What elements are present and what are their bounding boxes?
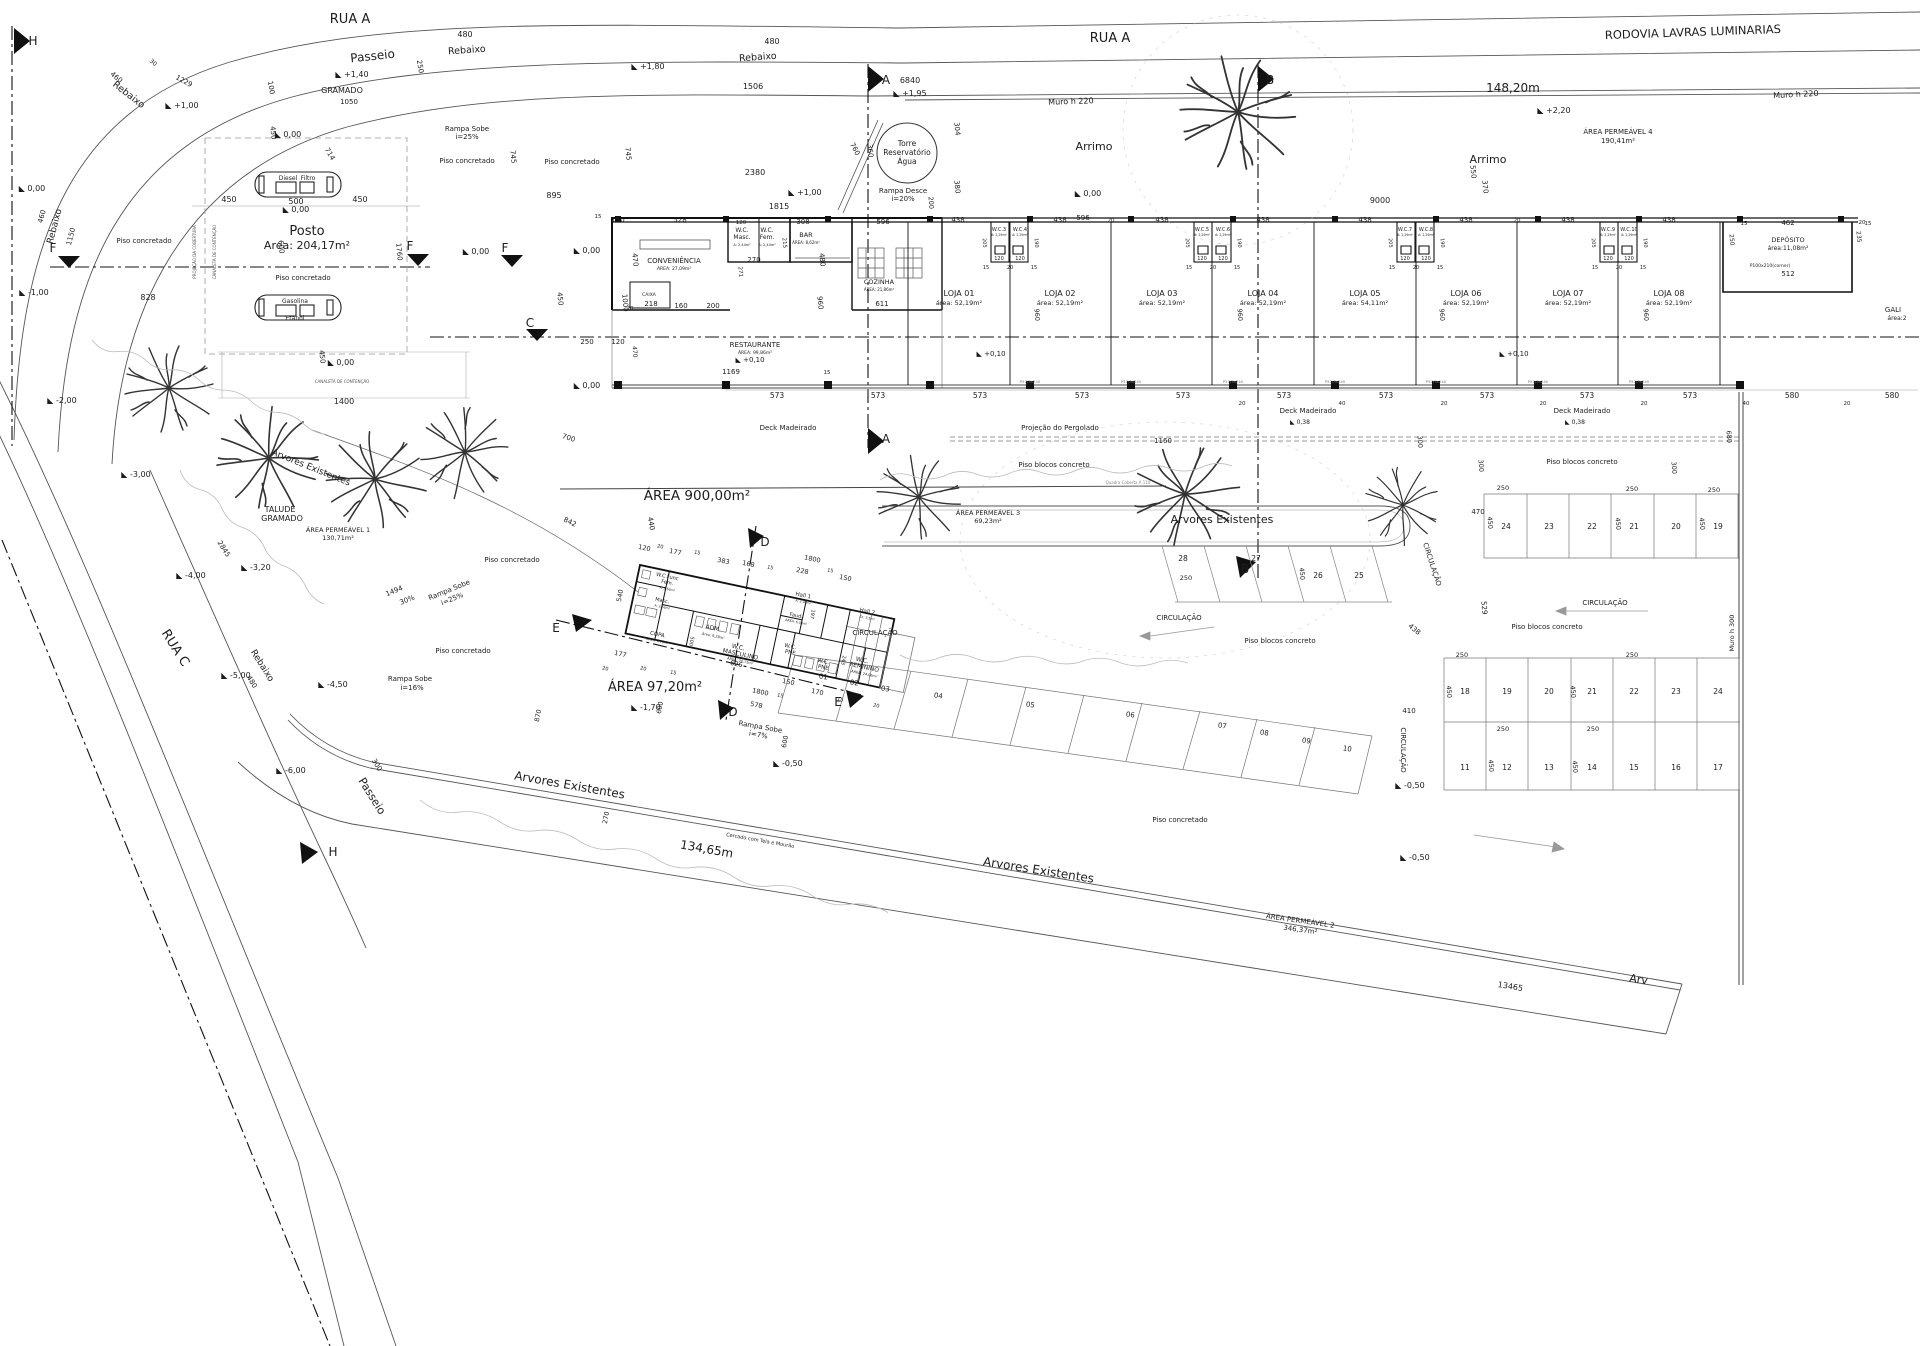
plan-label: CAIXA xyxy=(642,292,657,298)
plan-label: área: 52,19m² xyxy=(1646,299,1693,307)
plan-label: ◣ 0,00 xyxy=(19,184,46,193)
tree-band xyxy=(882,506,1410,602)
plan-label: 20 xyxy=(627,306,634,312)
plan-label: 20 xyxy=(1616,265,1622,271)
plan-label: 1506 xyxy=(743,82,763,91)
circulation-arrows xyxy=(1140,607,1648,852)
plan-label: ◣ 0,00 xyxy=(574,246,601,255)
plan-label: 450 xyxy=(1568,685,1577,698)
plan-label: 6840 xyxy=(900,76,920,85)
plan-label: ÁREA: 8,62m² xyxy=(792,240,820,245)
plan-label: 26 xyxy=(1313,571,1323,580)
plan-label: Rebaixo xyxy=(46,207,65,245)
plan-label: 218 xyxy=(644,300,657,308)
plan-label: CANALETA DE CONTENÇÃO xyxy=(212,225,217,280)
plan-label: 02 xyxy=(849,678,859,687)
plan-label: 40 xyxy=(1743,401,1750,407)
plan-label: 20 xyxy=(1671,522,1681,531)
plan-label: TALUDE xyxy=(264,505,296,514)
plan-label: 15 xyxy=(1186,265,1192,271)
plan-label: 09 xyxy=(1301,736,1311,745)
plan-label: ◣ 0,00 xyxy=(1075,189,1102,198)
tree xyxy=(868,448,970,549)
plan-label: 200 xyxy=(926,196,935,209)
plan-label: 573 xyxy=(1379,391,1394,400)
section-marker-triangle xyxy=(572,614,592,632)
plan-label: ◣ -0,50 xyxy=(1395,781,1424,790)
plan-label: 596 xyxy=(1076,214,1090,222)
plan-label: 130,71m² xyxy=(322,534,354,542)
plan-label: ◣ 0,00 xyxy=(283,205,310,214)
plan-label: ◣ +0,10 xyxy=(1499,350,1528,358)
plan-label: área: 52,19m² xyxy=(1037,299,1084,307)
plan-label: 100 xyxy=(266,80,276,95)
plan-label: 2380 xyxy=(745,168,765,177)
plan-label: 17 xyxy=(1713,763,1723,772)
plan-label: Arvores Existentes xyxy=(513,768,626,801)
plan-label: 120 xyxy=(638,543,652,553)
plan-label: CIRCULAÇÃO xyxy=(1582,598,1628,607)
plan-label: 20 xyxy=(1544,687,1554,696)
plan-label: 462 xyxy=(1781,219,1794,227)
plan-label: P100x210(corner) xyxy=(1750,263,1791,269)
site-plan-drawing: RUA ARUA ARODOVIA LAVRAS LUMINARIASPasse… xyxy=(0,0,1920,1346)
plan-label: 250 xyxy=(1180,574,1192,582)
plan-label: 15 xyxy=(669,669,676,676)
plan-label: 20 xyxy=(1540,401,1547,407)
plan-label: 20 xyxy=(1514,218,1521,224)
plan-label: Quadra Coberta A 110 xyxy=(1106,480,1151,485)
plan-label: ÁREA PERMEÁVEL 1 xyxy=(306,525,370,534)
plan-label: 270 xyxy=(601,811,611,825)
plan-label: Passeio xyxy=(350,47,396,66)
plan-label: Piso concretado xyxy=(544,158,599,166)
plan-label: 1050 xyxy=(340,98,358,106)
plan-label: Diesel xyxy=(279,175,298,182)
plan-label: Reservatório xyxy=(883,148,931,157)
plan-label: Piso blocos concreto xyxy=(1511,623,1582,631)
plan-label: 15 xyxy=(1741,221,1748,227)
plan-label: 11 xyxy=(1460,763,1470,772)
plan-label: CIRCULAÇÃO xyxy=(1156,613,1202,622)
plan-label: 596 xyxy=(876,218,890,226)
plan-label: 450 xyxy=(352,195,367,204)
plan-label: ÁREA 97,20m² xyxy=(608,679,702,695)
plan-label: 960 xyxy=(1032,308,1041,321)
plan-label: 573 xyxy=(770,391,785,400)
plan-label: ◣ +2,20 xyxy=(1537,106,1570,115)
plan-label: Piso concretado xyxy=(439,157,494,165)
plan-label: H xyxy=(28,34,37,48)
kitchen-tables xyxy=(795,248,922,278)
plan-label: Projeção do Pergolado xyxy=(1021,424,1099,432)
plan-label: ÁREA PERMEÁVEL 4 xyxy=(1583,127,1653,136)
plan-label: A xyxy=(882,432,891,446)
plan-label: 21 xyxy=(1587,687,1597,696)
plan-label: 15 xyxy=(766,564,773,571)
plan-label: 20 xyxy=(639,665,646,672)
plan-label: F xyxy=(50,241,57,255)
plan-label: Torre xyxy=(897,139,917,148)
plan-label: ◣ -1,00 xyxy=(19,288,48,297)
plan-label: 21 xyxy=(1629,522,1639,531)
plan-label: 600 xyxy=(780,735,790,749)
plan-label: ◣ -4,00 xyxy=(176,571,205,580)
plan-label: 197 xyxy=(808,609,816,619)
plan-label: ◣ -6,00 xyxy=(276,766,305,775)
plan-label: ◣ 0,38 xyxy=(1565,419,1585,426)
plan-label: Etanol xyxy=(286,315,305,322)
plan-label: 10 xyxy=(1342,744,1352,753)
plan-label: 895 xyxy=(546,191,561,200)
plan-label: 760 xyxy=(848,141,861,157)
plan-label: LOJA 04 xyxy=(1248,289,1279,298)
plan-label: 16 xyxy=(1671,763,1681,772)
plan-label: 15 xyxy=(1592,265,1598,271)
plan-label: CIRCULAÇÃO xyxy=(852,628,898,637)
plan-label: 470 xyxy=(1471,508,1484,516)
plan-label: ◣ -0,50 xyxy=(1400,853,1429,862)
plan-label: 1160 xyxy=(1154,437,1172,445)
plan-label: 120 xyxy=(994,256,1004,262)
plan-label: Masc. xyxy=(733,234,750,241)
plan-label: 450 xyxy=(1697,517,1706,530)
plan-label: 205 xyxy=(1387,238,1394,248)
section-marker-triangle xyxy=(846,690,864,708)
plan-label: i=16% xyxy=(400,684,424,692)
section-marker-triangle xyxy=(58,256,80,268)
plan-label: Piso blocos concreto xyxy=(1244,637,1315,645)
plan-label: GALI xyxy=(1885,306,1901,314)
ramp-line xyxy=(838,120,883,213)
plan-label: 120 xyxy=(1624,256,1634,262)
plan-label: 20 xyxy=(1413,265,1419,271)
tree xyxy=(1115,424,1256,565)
plan-label: DEPÓSITO xyxy=(1771,235,1804,244)
plan-label: Piso concretado xyxy=(275,274,330,282)
plan-label: H xyxy=(328,845,337,859)
plan-label: Piso concretado xyxy=(1152,816,1207,824)
plan-label: 512 xyxy=(1781,270,1794,278)
section-markers xyxy=(14,28,1274,864)
plan-label: ÁREA: 27,09m² xyxy=(657,265,691,272)
plan-label: 15 xyxy=(595,214,602,220)
plan-label: 22 xyxy=(1629,687,1639,696)
plan-label: 12 xyxy=(1502,763,1512,772)
plan-label: 120 xyxy=(1603,256,1613,262)
plan-label: 15 xyxy=(1234,265,1240,271)
plan-label: 308 xyxy=(796,218,809,226)
plan-label: 960 xyxy=(1235,308,1244,321)
plan-label: 20 xyxy=(656,543,663,550)
plan-label: 573 xyxy=(1277,391,1292,400)
right-wall xyxy=(1739,392,1743,985)
plan-label: 270 xyxy=(747,256,760,264)
plan-label: Rebaixo xyxy=(448,44,487,58)
plan-label: 15 xyxy=(826,567,833,574)
restaurant-slab xyxy=(612,310,942,388)
plan-label: 438 xyxy=(1407,622,1422,637)
plan-label: ◣ +1,95 xyxy=(893,89,926,98)
plan-label: 168 xyxy=(742,559,756,569)
plan-label: 120 xyxy=(611,338,624,346)
plan-label: 438 xyxy=(1459,216,1472,224)
plan-label: ÁREA: 99,86m² xyxy=(738,349,772,356)
plan-label: Rampa Sobe xyxy=(388,675,432,683)
plan-label: 1400 xyxy=(334,397,354,406)
plan-label: 20 xyxy=(1007,265,1013,271)
plan-label: Arv xyxy=(1628,972,1649,988)
plan-label: 190 xyxy=(1236,238,1243,248)
plan-label: 1800 xyxy=(803,553,821,564)
plan-label: Muro h 220 xyxy=(1048,96,1094,107)
plan-label: 08 xyxy=(1259,728,1269,737)
plan-label: 438 xyxy=(1561,216,1574,224)
plan-label: área: 52,19m² xyxy=(1545,299,1592,307)
plan-label: 600 xyxy=(276,240,285,254)
plan-label: 20 xyxy=(1641,401,1648,407)
plan-label: 69,23m² xyxy=(974,517,1002,525)
plan-label: 22 xyxy=(1587,522,1597,531)
plan-label: 18 xyxy=(1460,687,1470,696)
fuel-island-diesel xyxy=(255,172,341,197)
plan-label: Rampa Desce xyxy=(879,187,927,195)
plan-label: F xyxy=(502,241,509,255)
plan-label: 23 xyxy=(1671,687,1681,696)
plan-label: 235 xyxy=(1855,231,1863,243)
plan-label: 170 xyxy=(811,687,825,697)
plan-label: LOJA 05 xyxy=(1350,289,1381,298)
plan-label: 271 xyxy=(737,266,744,277)
plan-label: 578 xyxy=(750,700,764,710)
plan-label: 438 xyxy=(1155,216,1168,224)
plan-label: ◣ -4,50 xyxy=(318,680,347,689)
plan-label: 529 xyxy=(1479,601,1488,615)
plan-label: Deck Madeirado xyxy=(760,424,817,432)
plan-label: 480 xyxy=(817,253,826,267)
plan-label: RODOVIA LAVRAS LUMINARIAS xyxy=(1605,22,1782,42)
plan-label: Muro h 220 xyxy=(1773,89,1819,100)
plan-label: i=20% xyxy=(891,195,915,203)
plan-label: ÁREA 900,00m² xyxy=(644,487,750,504)
plan-label: Piso concretado xyxy=(435,647,490,655)
plan-label: 120 xyxy=(611,216,624,224)
plan-label: P57/3x240 xyxy=(1528,379,1549,384)
plan-label: 200 xyxy=(706,302,719,310)
plan-label: LOJA 03 xyxy=(1147,289,1178,298)
plan-label: 250 xyxy=(1728,234,1736,246)
plan-label: 07 xyxy=(1217,721,1227,730)
plan-label: 1815 xyxy=(769,202,789,211)
plan-label: 573 xyxy=(1580,391,1595,400)
plan-label: ◣ +1,00 xyxy=(165,101,198,110)
plan-label: 15 xyxy=(1031,265,1037,271)
plan-label: 06 xyxy=(1125,710,1135,719)
plan-label: Gasolina xyxy=(282,298,308,305)
plan-label: 370 xyxy=(1480,180,1489,194)
plan-label: 23 xyxy=(1544,522,1554,531)
annex xyxy=(880,633,915,693)
plan-label: ÁREA PERMEÁVEL 3 xyxy=(956,508,1020,517)
plan-label: Arrimo xyxy=(1076,140,1113,153)
plan-label: 24 xyxy=(1501,522,1511,531)
plan-label: 1800 xyxy=(751,686,769,697)
plan-label: 450 xyxy=(1570,760,1579,773)
plan-label: Muro h 300 xyxy=(1728,615,1736,652)
plan-label: 19 xyxy=(1502,687,1512,696)
plan-label: P57/3x240 xyxy=(1223,379,1244,384)
plan-label: 250 xyxy=(1456,651,1468,659)
plan-label: 250 xyxy=(1626,651,1638,659)
plan-label: 228 xyxy=(796,566,810,576)
plan-label: ◣ +1,40 xyxy=(335,70,368,79)
plan-label: 9000 xyxy=(1370,196,1390,205)
plan-label: 470 xyxy=(630,253,639,267)
plan-label: área:11,08m² xyxy=(1768,245,1809,252)
plan-label: A: 2,29m² xyxy=(1012,233,1028,237)
plan-label: área: 54,11m² xyxy=(1342,299,1389,307)
section-marker-triangle xyxy=(300,842,318,864)
plan-label: LOJA 08 xyxy=(1654,289,1685,298)
plan-label: RESTAURANTE xyxy=(730,341,781,349)
plan-label: ◣ -3,00 xyxy=(121,470,150,479)
plan-label: ◣ -0,50 xyxy=(773,759,802,768)
plan-label: ◣ 0,00 xyxy=(463,247,490,256)
plan-label: 383 xyxy=(717,556,731,566)
plan-label: 15 xyxy=(693,549,700,556)
plan-label: 120 xyxy=(1218,256,1228,262)
plan-label: PNE xyxy=(817,664,829,672)
plan-label: 438 xyxy=(1358,216,1371,224)
plan-label: 20 xyxy=(872,702,879,709)
storefront xyxy=(612,385,1740,388)
plan-label: 05 xyxy=(1025,700,1035,709)
plan-label: 300 xyxy=(1476,459,1485,472)
plan-label: 600 xyxy=(655,701,665,715)
plan-label: E xyxy=(834,695,842,709)
plan-label: ◣ -2,00 xyxy=(47,396,76,405)
section-marker-triangle xyxy=(501,255,523,267)
plan-label: Piso blocos concreto xyxy=(1018,461,1089,469)
plan-label: LOJA 01 xyxy=(944,289,975,298)
plan-label: CONVENIÊNCIA xyxy=(647,256,701,265)
plan-label: 450 xyxy=(1486,759,1495,772)
plan-label: 450 xyxy=(1613,517,1622,530)
plan-label: ◣ -5,00 xyxy=(221,671,250,680)
plan-label: A: 2,29m² xyxy=(1215,233,1231,237)
plan-label: 177 xyxy=(614,649,628,659)
plan-label: Arvores Existentes xyxy=(1171,513,1274,526)
plan-label: 120 xyxy=(1400,256,1410,262)
plan-label: Cercado com Tela e Mourão xyxy=(726,832,795,850)
plan-label: Água xyxy=(897,157,916,166)
plan-label: 215 xyxy=(781,237,788,248)
section-line-e xyxy=(556,620,862,695)
plan-label: 573 xyxy=(1075,391,1090,400)
plan-label: 626 xyxy=(730,659,744,669)
plan-label: 20 xyxy=(1844,401,1851,407)
plan-label: CIRCULAÇÃO xyxy=(1421,541,1444,587)
plan-label: ◣ +1,00 xyxy=(788,188,821,197)
plan-label: P57/3x240 xyxy=(1325,379,1346,384)
plan-label: 03 xyxy=(880,684,890,693)
plan-label: 680 xyxy=(1724,430,1733,443)
plan-label: área: 52,19m² xyxy=(1443,299,1490,307)
loja-dividers xyxy=(908,222,1720,385)
plan-label: 960 xyxy=(1437,308,1446,321)
tree xyxy=(1172,48,1304,178)
plan-label: 19 xyxy=(1713,522,1723,531)
plan-label: 148,20m xyxy=(1486,81,1540,95)
plan-label: 120 xyxy=(1015,256,1025,262)
plan-label: PROJEÇÃO DA COBERTURA xyxy=(192,225,197,279)
plan-label: 15 xyxy=(824,370,831,376)
plan-label: i=25% xyxy=(455,133,479,141)
plan-label: ◣ 0,00 xyxy=(574,381,601,390)
bottom-band-arvores xyxy=(238,714,1682,1034)
plan-label: 960 xyxy=(815,296,824,310)
plan-label: 250 xyxy=(1497,725,1509,733)
plan-label: 250 xyxy=(1708,486,1720,494)
plan-label: P57/3x240 xyxy=(1020,379,1041,384)
plan-label: 20 xyxy=(1210,265,1216,271)
plan-label: 745 xyxy=(508,150,517,164)
section-marker-triangle xyxy=(407,254,429,266)
plan-label: 15 xyxy=(776,692,783,699)
plan-label: W.C. xyxy=(735,227,748,234)
plan-label: 13 xyxy=(1544,763,1554,772)
shelf xyxy=(640,240,710,249)
plan-label: 580 xyxy=(1785,391,1800,400)
plan-label: 480 xyxy=(457,30,472,39)
plan-label: 250 xyxy=(580,338,593,346)
plan-label: 20 xyxy=(1108,218,1115,224)
plan-label: 24 xyxy=(1713,687,1723,696)
plan-label: 470 xyxy=(631,346,639,358)
plan-label: RUA A xyxy=(330,12,371,27)
plan-label: A: 2,44m² xyxy=(733,243,751,247)
plan-label: 120 xyxy=(1197,256,1207,262)
plan-label: 438 xyxy=(1256,216,1269,224)
section-line-h2 xyxy=(2,540,330,1346)
plan-label: 1229 xyxy=(174,74,193,89)
plan-label: ◣ +0,10 xyxy=(735,356,764,364)
plan-label: 438 xyxy=(1053,216,1066,224)
plan-label: 1169 xyxy=(722,368,740,376)
plan-label: P57/3x240 xyxy=(1121,379,1142,384)
plan-label: 573 xyxy=(1176,391,1191,400)
plan-label: área: 52,19m² xyxy=(1240,299,1287,307)
plan-label: 540 xyxy=(615,589,625,603)
plan-label: 250 xyxy=(415,59,425,74)
plan-label: 870 xyxy=(533,709,543,723)
tree xyxy=(125,346,213,432)
plan-label: ◣ 0,38 xyxy=(1290,419,1310,426)
plan-label: 300 xyxy=(1669,461,1678,474)
plan-label: 573 xyxy=(1683,391,1698,400)
plan-label: 700 xyxy=(561,432,576,444)
plan-label: PNE xyxy=(784,649,796,657)
plan-label: 150 xyxy=(839,573,853,583)
site-boundary xyxy=(112,88,1920,464)
plan-label: 580 xyxy=(1885,391,1900,400)
plan-label: 28 xyxy=(1178,554,1188,563)
plan-label: 04 xyxy=(933,691,943,700)
plan-label: 15 xyxy=(1865,221,1872,227)
plan-label: 190 xyxy=(1439,238,1446,248)
plan-label: 450 xyxy=(555,292,564,306)
plan-label: 573 xyxy=(1480,391,1495,400)
